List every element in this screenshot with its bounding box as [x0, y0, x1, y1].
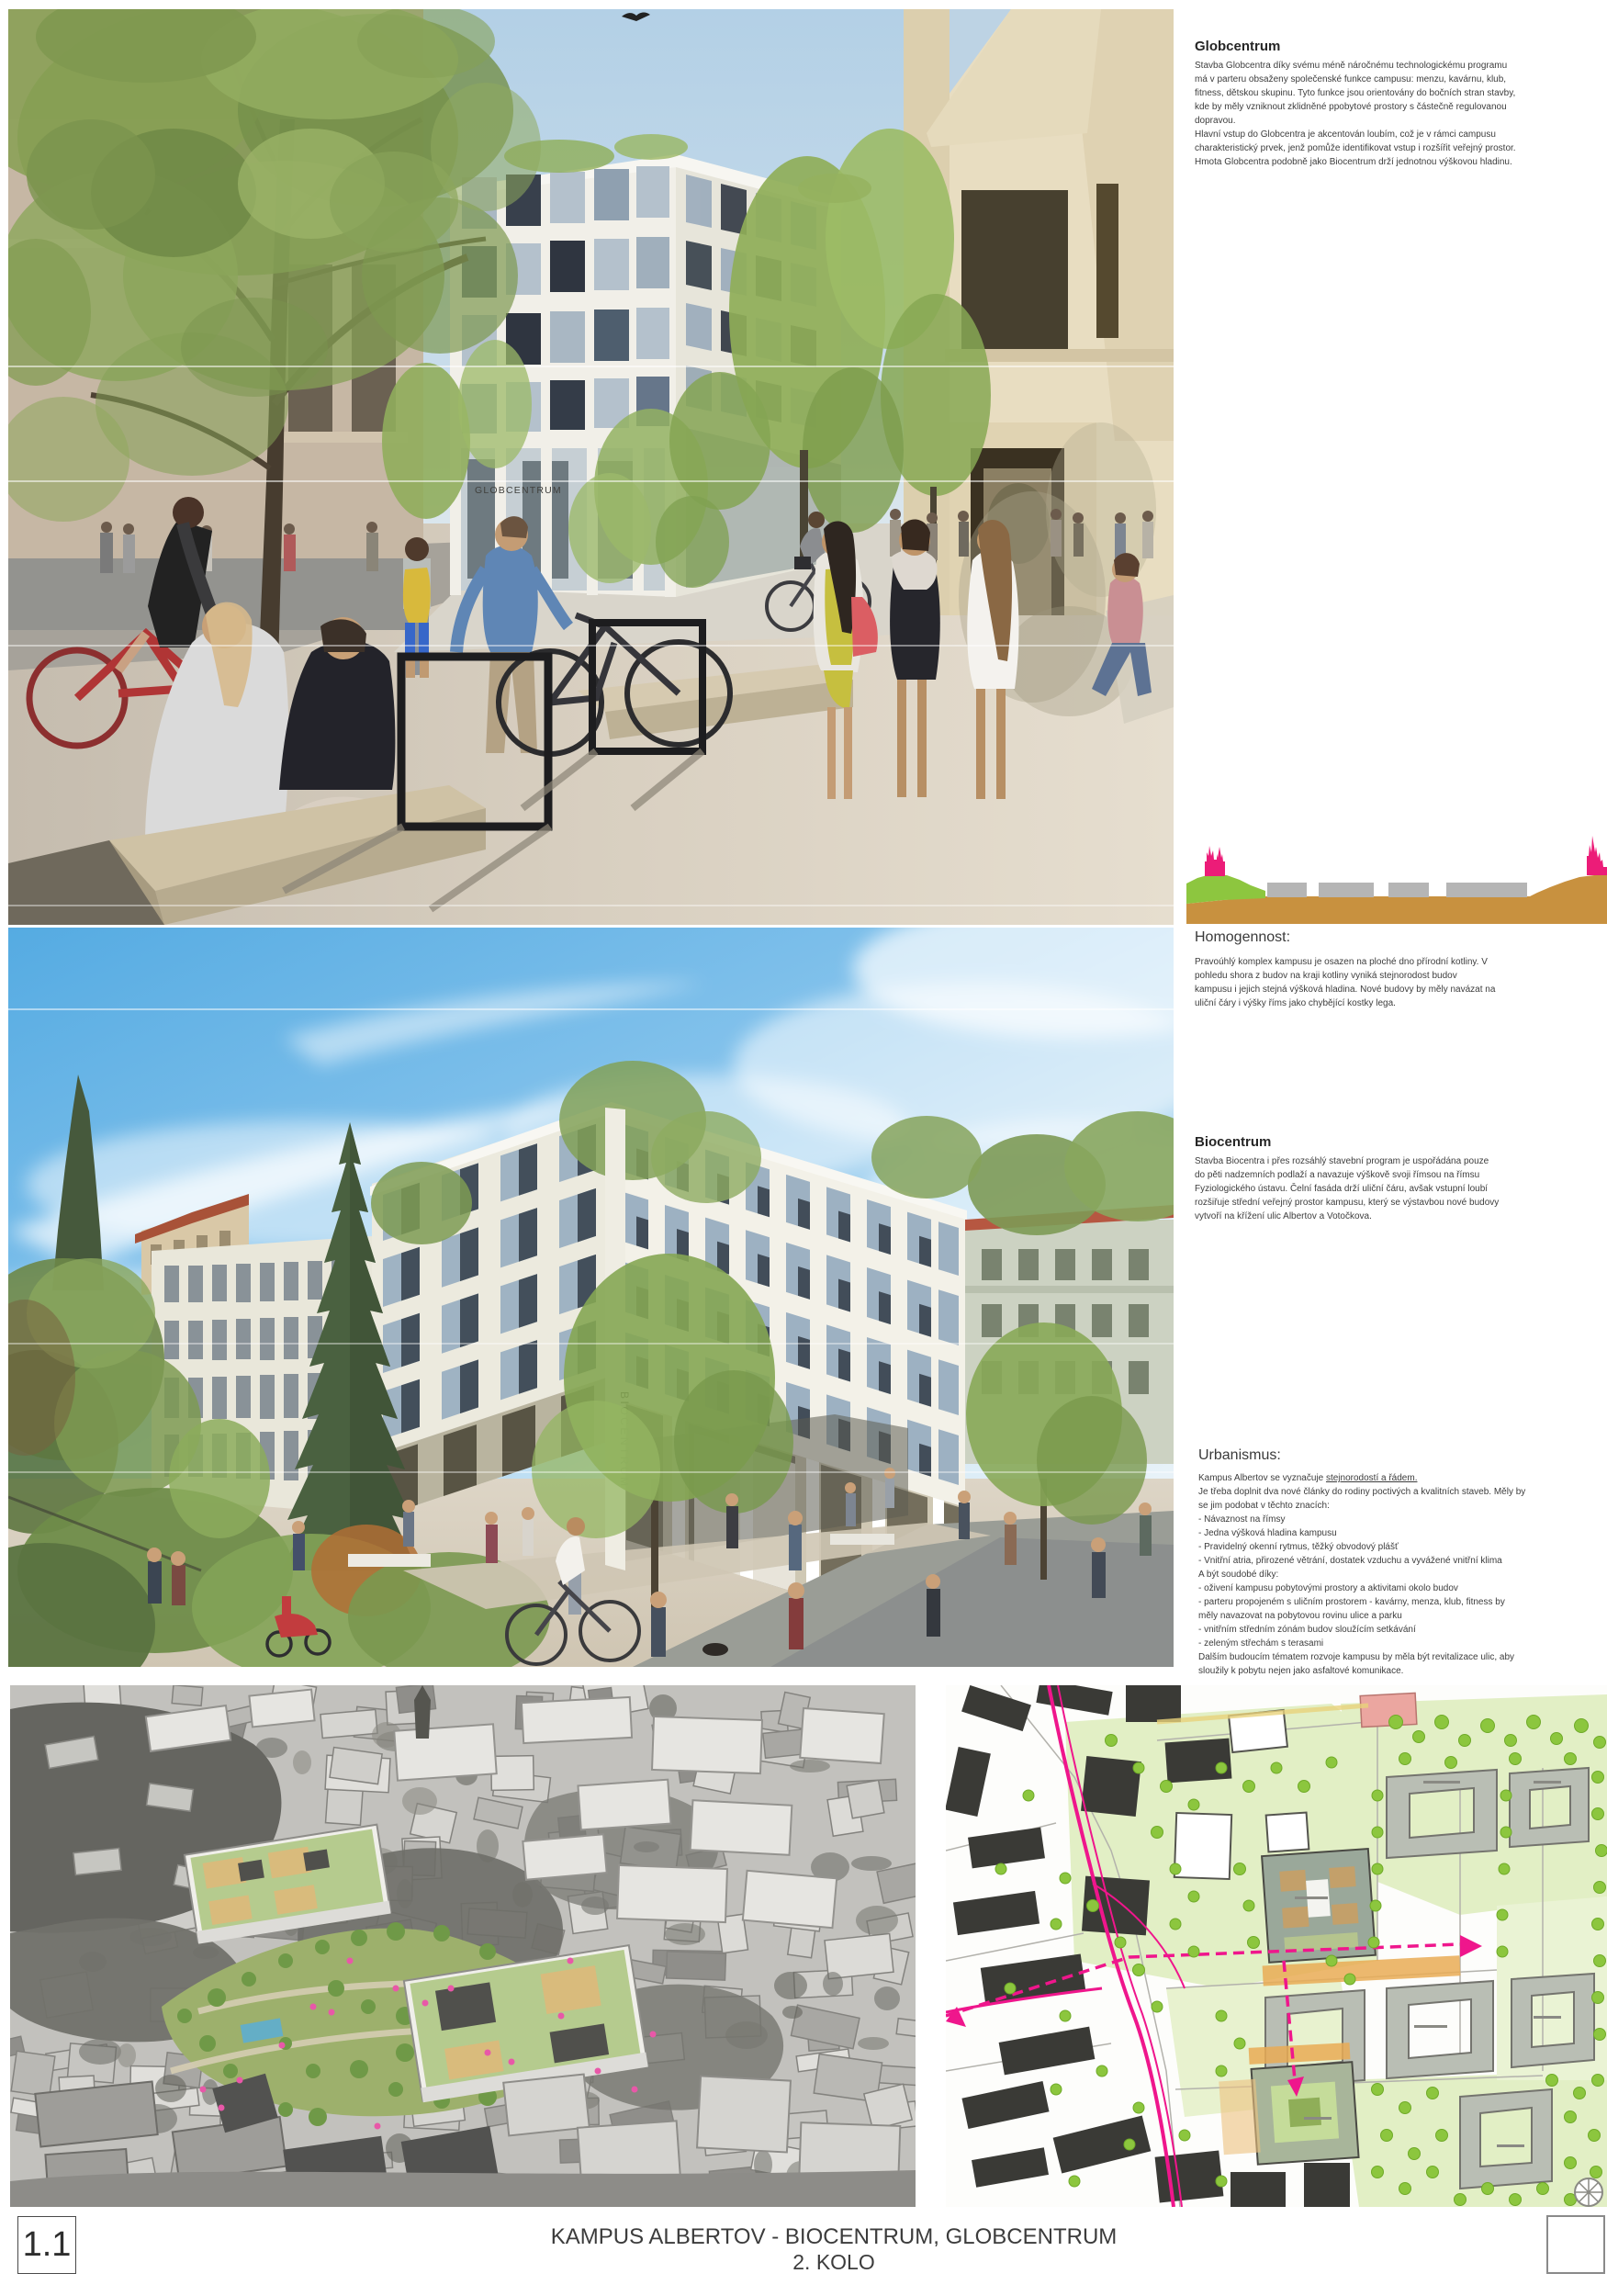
svg-text:GLOBCENTRUM: GLOBCENTRUM	[475, 485, 562, 496]
